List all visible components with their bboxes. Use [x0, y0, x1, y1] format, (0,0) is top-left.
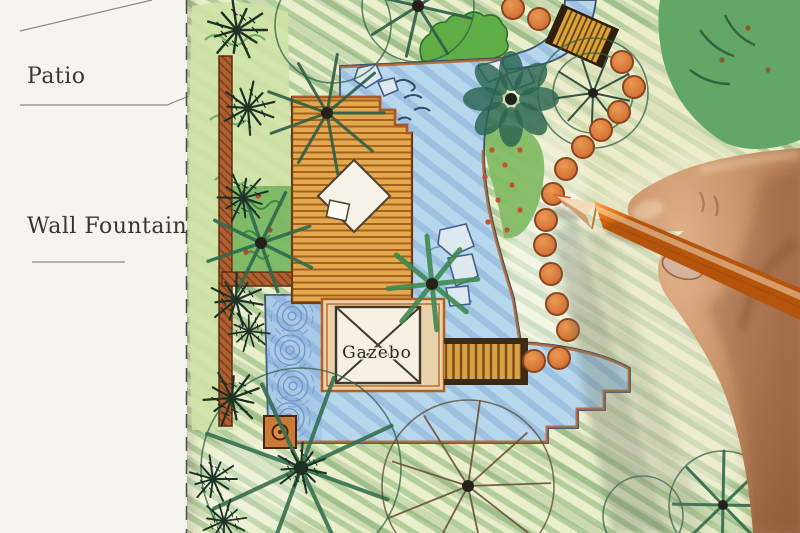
stepping-stone: [528, 8, 550, 30]
berry-dot: [745, 25, 750, 30]
berry-dot: [489, 147, 494, 152]
stepping-stone: [623, 76, 645, 98]
berry-dot: [495, 197, 500, 202]
stepping-stone: [590, 119, 612, 141]
stepping-stone: [546, 293, 568, 315]
plan-drawing: Gazebo Patio Wall Fountain: [0, 0, 800, 533]
tree-symbol-petal: [463, 51, 559, 147]
stepping-stone: [572, 136, 594, 158]
gazebo: Gazebo: [322, 299, 444, 391]
deck: [292, 97, 412, 303]
berry-dot: [719, 57, 724, 62]
berry-dot: [517, 147, 522, 152]
stepping-stone: [540, 263, 562, 285]
gazebo-label: Gazebo: [342, 343, 412, 363]
stepping-stone: [611, 51, 633, 73]
patio-label: Patio: [27, 64, 86, 89]
stepping-stone: [535, 209, 557, 231]
stepping-stone: [502, 0, 524, 19]
berry-dot: [502, 162, 507, 167]
berry-dot: [517, 207, 522, 212]
stepping-stone: [548, 347, 570, 369]
berry-dot: [765, 67, 770, 72]
berry-dot: [504, 227, 509, 232]
stepping-stone: [555, 158, 577, 180]
berry-dot: [509, 182, 514, 187]
stepping-stone: [608, 101, 630, 123]
photo-landscape-plan: Gazebo Patio Wall Fountain: [0, 0, 800, 533]
wall-fountain-label: Wall Fountain: [27, 214, 187, 239]
stepping-stone: [534, 234, 556, 256]
boardwalk: [444, 338, 528, 385]
berry-dot: [482, 174, 487, 179]
stepping-stone: [523, 350, 545, 372]
berry-dot: [485, 219, 490, 224]
